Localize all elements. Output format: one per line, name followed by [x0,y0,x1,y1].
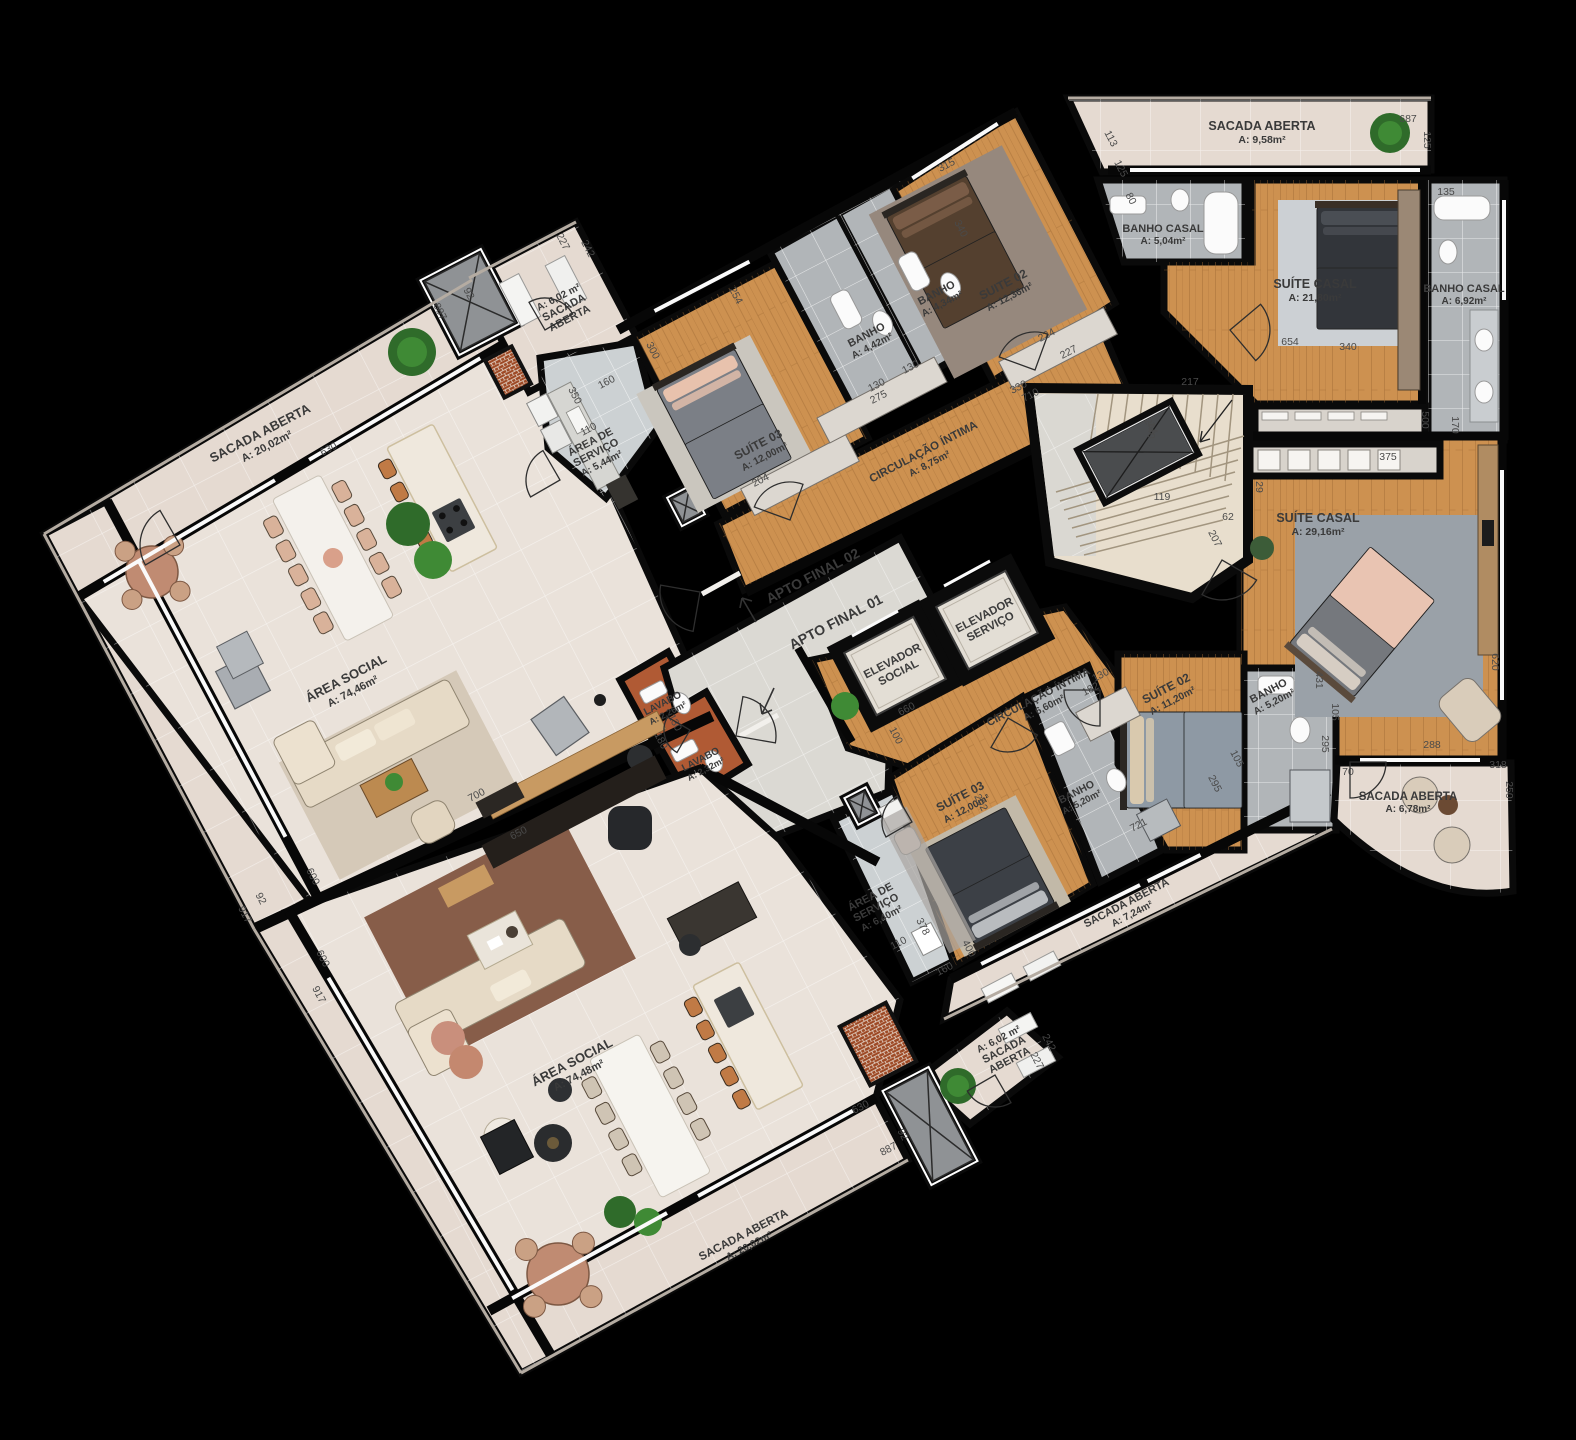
svg-text:250: 250 [1503,781,1515,799]
svg-text:375: 375 [1379,451,1397,463]
svg-text:A: 9,58m²: A: 9,58m² [1238,134,1286,146]
svg-text:119: 119 [1154,491,1171,503]
svg-text:217: 217 [1181,376,1199,388]
svg-text:A: 5,04m²: A: 5,04m² [1140,236,1186,247]
svg-text:BANHO CASAL: BANHO CASAL [1423,283,1505,295]
svg-text:340: 340 [1339,341,1357,353]
svg-text:SUÍTE CASAL: SUÍTE CASAL [1273,276,1357,291]
svg-text:SACADA ABERTA: SACADA ABERTA [1208,119,1315,133]
svg-text:A: 29,16m²: A: 29,16m² [1291,526,1345,538]
svg-text:288: 288 [1423,739,1441,751]
svg-text:687: 687 [1399,113,1417,125]
svg-text:SACADA ABERTA: SACADA ABERTA [1359,791,1458,803]
svg-text:SUÍTE CASAL: SUÍTE CASAL [1276,510,1360,525]
svg-text:70: 70 [1342,766,1354,778]
svg-text:BANHO CASAL: BANHO CASAL [1122,223,1204,235]
svg-text:170: 170 [1449,416,1461,434]
svg-text:140: 140 [1145,421,1157,439]
svg-text:29: 29 [1253,481,1265,493]
svg-text:318: 318 [1489,759,1507,771]
svg-text:62: 62 [1222,511,1234,523]
svg-text:105: 105 [1329,703,1341,721]
svg-text:500: 500 [1419,411,1431,429]
svg-text:295: 295 [1319,735,1331,753]
svg-text:431: 431 [1313,671,1325,689]
svg-text:A: 6,92m²: A: 6,92m² [1441,296,1487,307]
svg-text:A: 21,80m²: A: 21,80m² [1288,292,1342,304]
svg-text:620: 620 [1489,653,1501,671]
svg-text:125: 125 [1421,131,1433,149]
svg-text:654: 654 [1281,336,1299,348]
svg-text:A: 6,78m²: A: 6,78m² [1385,804,1431,815]
svg-text:135: 135 [1437,186,1455,198]
